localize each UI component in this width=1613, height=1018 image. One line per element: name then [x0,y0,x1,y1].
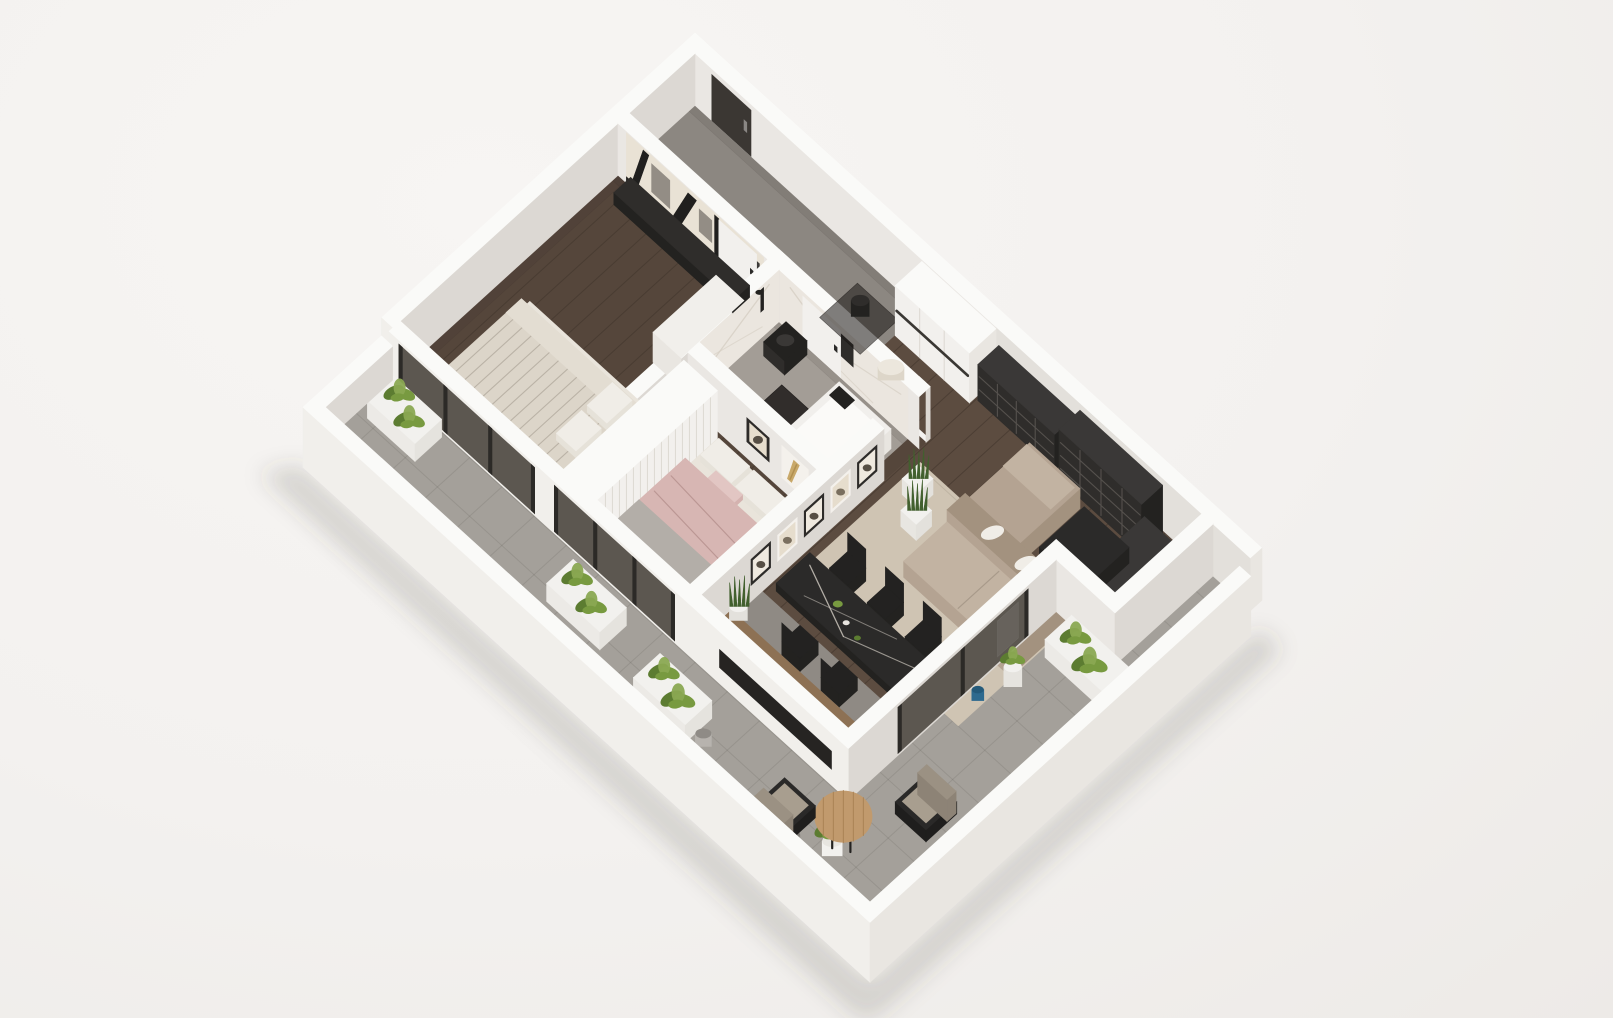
wall-face [926,387,930,443]
frame-motif [863,464,872,471]
isometric-scene [0,0,1613,1018]
floorplan-3d-render [0,0,1613,1018]
table-plant [833,600,843,607]
vase-top [972,686,984,693]
glass-frame [489,426,493,475]
glass-frame [898,704,902,753]
wall-ne-end [1251,548,1262,610]
glass-frame [531,464,535,513]
shower-head [755,290,763,295]
frame-motif [756,561,765,568]
front-door-handle [744,120,747,132]
glass-frame [1025,589,1029,638]
steel-pot [695,728,711,746]
black-stool-top [851,295,869,306]
glass-frame [444,385,448,434]
blue-vase [972,686,984,701]
glass-frame [554,485,558,534]
toilet-seat [776,334,794,346]
frame-motif [783,537,792,544]
pot-top [695,728,711,738]
table-dish [843,620,850,625]
frame-motif [836,489,845,496]
frame-motif [753,436,763,444]
glass-frame [671,592,675,641]
pouf-top [878,359,904,375]
glass-frame [961,647,965,696]
glass-frame [633,557,637,606]
frame-motif [810,513,819,520]
glass-frame [594,521,598,570]
table-plant [854,636,861,641]
